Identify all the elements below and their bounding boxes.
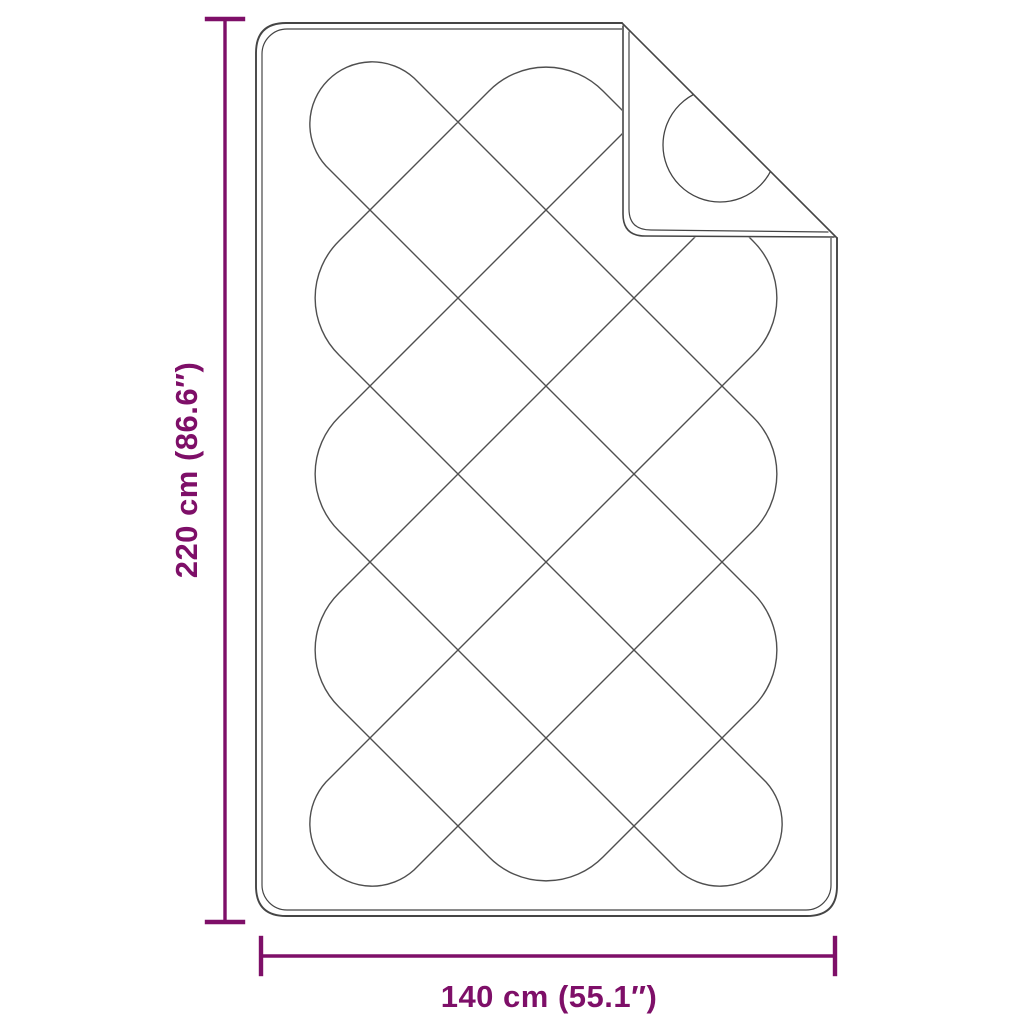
folded-corner-flap-group — [622, 23, 837, 238]
width-dimension-label: 140 cm (55.1″) — [441, 979, 658, 1014]
height-dimension-group — [207, 19, 243, 922]
product-dimension-diagram: 220 cm (86.6″) 140 cm (55.1″) — [0, 0, 1024, 1024]
width-dimension-group — [261, 938, 835, 974]
blanket-dimension-diagram-svg: 220 cm (86.6″) 140 cm (55.1″) — [0, 0, 1024, 1024]
height-dimension-label: 220 cm (86.6″) — [169, 362, 204, 579]
